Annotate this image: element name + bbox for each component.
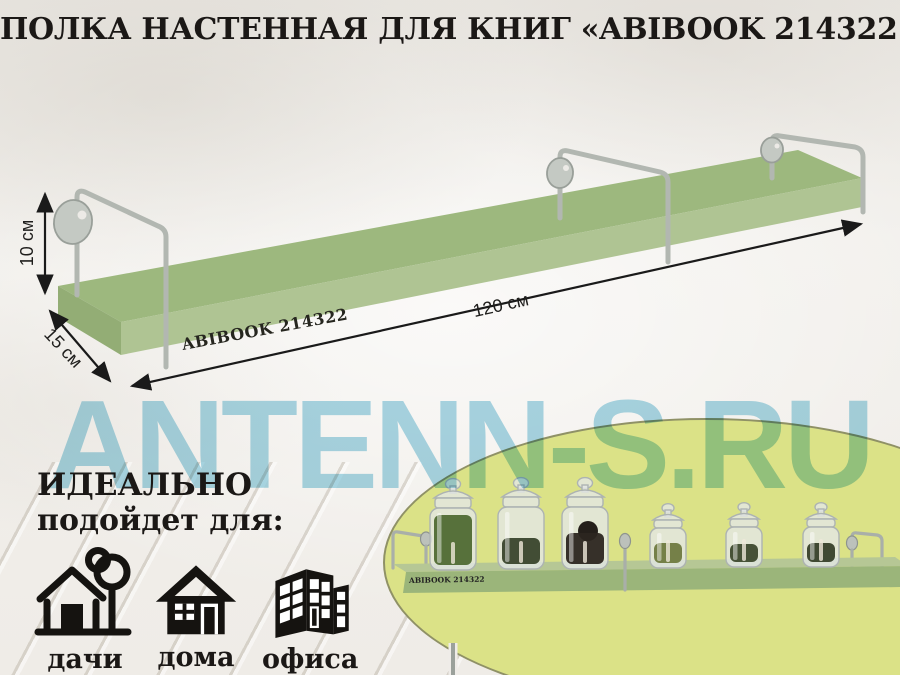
use-case-label: дома: [152, 642, 240, 673]
depth-dimension-label: 15 см: [40, 324, 86, 372]
screenshot-root: ПОЛКА НАСТЕННАЯ ДЛЯ КНИГ «ABIBOOK 214322…: [0, 0, 900, 675]
middle-mount-disc: [546, 157, 575, 190]
house-with-tree-icon: [32, 544, 138, 638]
use-case-label: офиса: [262, 644, 354, 675]
use-case-office: офиса: [262, 552, 354, 675]
height-dimension-label: 10 см: [17, 220, 37, 266]
use-case-label: дачи: [32, 644, 138, 675]
house-icon: [152, 556, 240, 636]
left-mount-disc: [51, 198, 95, 247]
use-case-dacha: дачи: [32, 544, 138, 675]
shelf-top-surface: [58, 150, 862, 322]
use-case-home: дома: [152, 556, 240, 673]
office-building-icon: [262, 552, 354, 638]
ideal-for-block: ИДЕАЛЬНО подойдет для:: [37, 468, 284, 538]
ideal-line1: ИДЕАЛЬНО: [37, 468, 284, 504]
length-dimension-label: 120 см: [471, 289, 530, 321]
ideal-line2: подойдет для:: [37, 504, 284, 539]
